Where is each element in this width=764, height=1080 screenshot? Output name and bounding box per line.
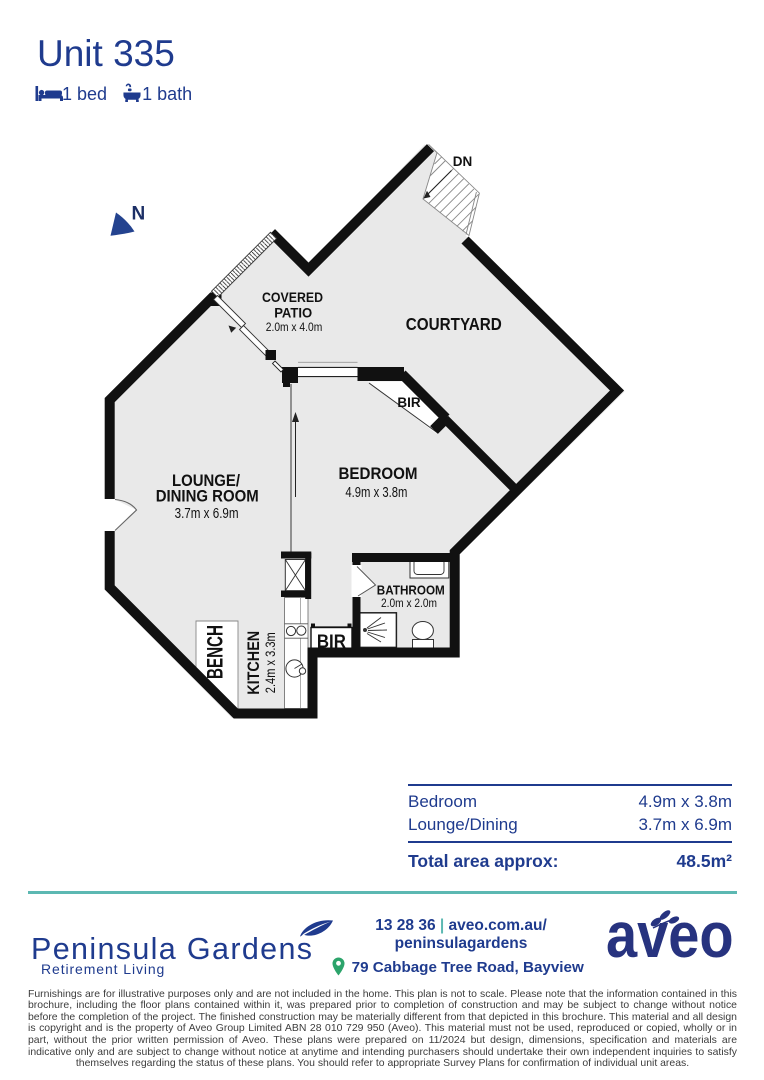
svg-text:BIR: BIR xyxy=(397,395,421,410)
svg-text:2.4m x 3.3m: 2.4m x 3.3m xyxy=(262,632,278,693)
svg-text:BENCH: BENCH xyxy=(203,625,228,679)
svg-text:2.0m x 2.0m: 2.0m x 2.0m xyxy=(381,598,437,610)
svg-text:KITCHEN: KITCHEN xyxy=(245,631,263,695)
svg-text:PATIO: PATIO xyxy=(274,306,312,321)
svg-text:BEDROOM: BEDROOM xyxy=(339,465,418,483)
svg-text:2.0m x 4.0m: 2.0m x 4.0m xyxy=(266,320,323,334)
svg-text:COURTYARD: COURTYARD xyxy=(406,314,502,334)
svg-text:BIR: BIR xyxy=(317,631,346,651)
svg-text:DN: DN xyxy=(453,154,473,169)
svg-text:N: N xyxy=(132,204,146,225)
svg-text:4.9m x 3.8m: 4.9m x 3.8m xyxy=(345,485,407,501)
svg-text:BATHROOM: BATHROOM xyxy=(377,584,445,598)
svg-text:3.7m x 6.9m: 3.7m x 6.9m xyxy=(175,506,239,522)
svg-text:COVERED: COVERED xyxy=(262,290,323,305)
svg-text:DINING ROOM: DINING ROOM xyxy=(156,488,259,506)
